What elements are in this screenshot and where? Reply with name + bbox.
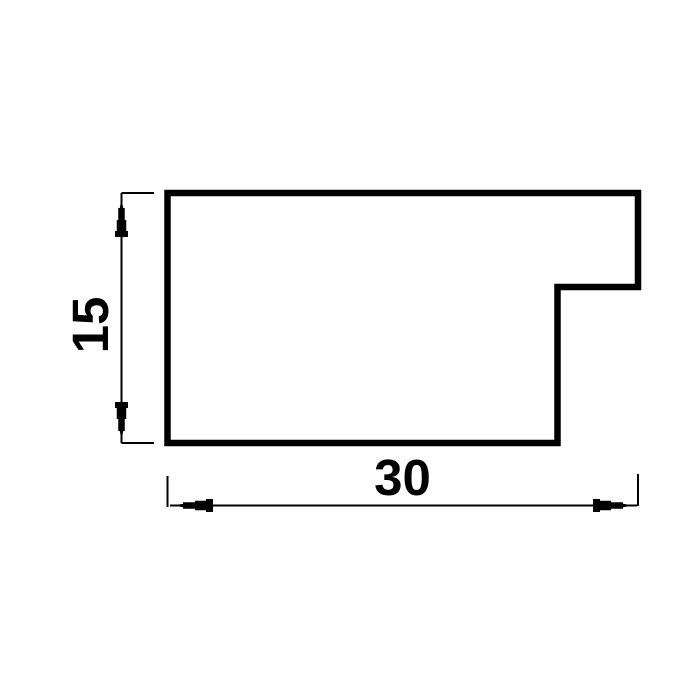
svg-text:30: 30 — [374, 449, 431, 506]
svg-text:15: 15 — [62, 297, 119, 354]
